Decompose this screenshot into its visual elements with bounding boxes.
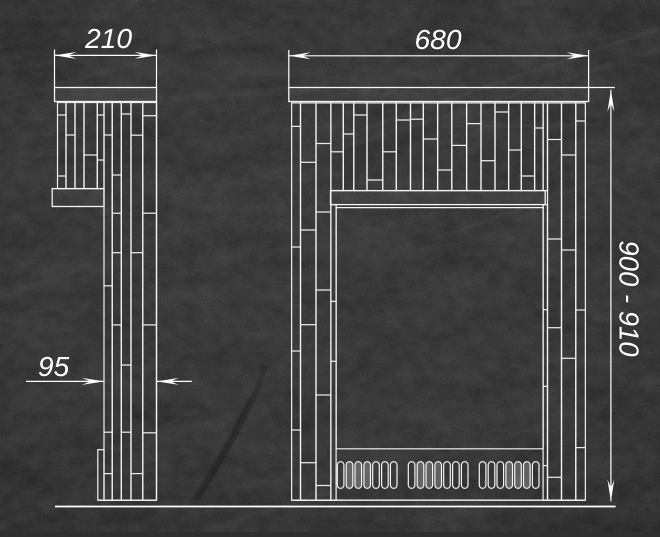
svg-text:210: 210 bbox=[84, 22, 132, 54]
svg-text:680: 680 bbox=[414, 23, 461, 55]
svg-text:95: 95 bbox=[38, 350, 70, 382]
svg-text:900 - 910: 900 - 910 bbox=[614, 240, 645, 357]
